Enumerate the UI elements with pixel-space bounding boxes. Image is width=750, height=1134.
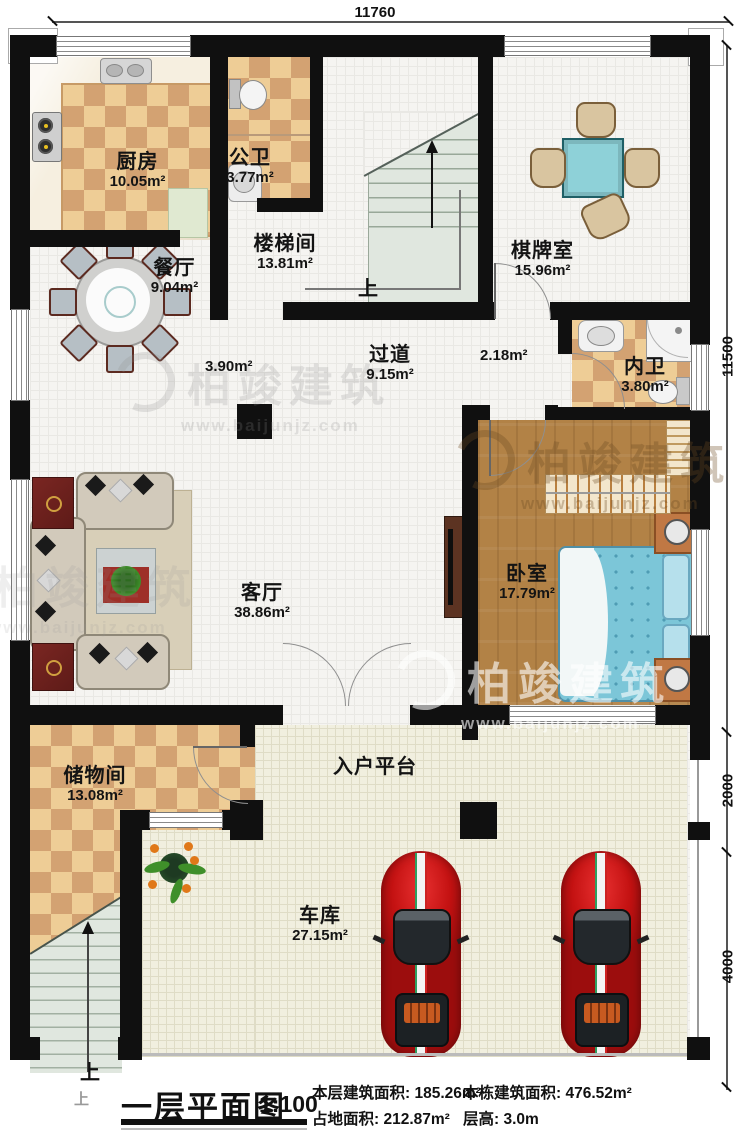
window [510,707,655,723]
plant [146,840,202,896]
side-cabinet [32,643,74,691]
wall [222,810,234,830]
room-label-living: 客厅38.86m² [222,583,302,622]
room-label-game-room: 棋牌室15.96m² [495,241,590,280]
stat-floor-area: 本层建筑面积: 185.26m² [312,1081,481,1103]
exterior-up-arrow-icon [82,921,94,934]
wall [478,57,493,310]
dimension-value-right: 11500 [720,329,737,385]
stat-total-area: 本栋建筑面积: 476.52m² [463,1081,632,1103]
window [150,813,222,827]
chair [576,102,616,138]
dimension-line-right [726,45,728,1090]
kitchen-sink [100,58,152,84]
wall [10,400,30,480]
wall-pier [688,822,710,840]
wall [690,410,710,530]
platform-edge [697,760,699,1037]
wall [558,320,572,354]
stairs-guide-line [305,288,461,290]
wall [120,810,150,830]
column [237,404,272,439]
wall [655,705,710,725]
window [692,345,708,410]
car [381,851,461,1057]
room-label-garage: 车库27.15m² [280,906,360,945]
wall [650,35,710,57]
bath-sink [578,320,624,352]
room-label-entry-platform: 入户平台 [320,757,430,778]
chair [530,148,566,188]
stairs-up-label-faint: 上 [74,1088,89,1109]
wall [10,1037,40,1060]
window [12,310,28,400]
door-leaf [193,746,247,748]
bath-partition [228,134,310,136]
title-underline-thin [121,1128,307,1130]
stairs-up-label: 上 [80,1056,100,1085]
dimension-line-top [52,21,730,23]
wardrobe-rod [545,474,671,514]
door-leaf [489,420,491,476]
room-label-storage: 储物间13.08m² [55,766,135,805]
dimension-value-top: 11760 [340,4,410,21]
room-label-bedroom: 卧室17.79m² [487,564,567,603]
wall [10,705,283,725]
column [460,802,497,839]
side-cabinet [32,477,74,529]
room-label-stairwell: 楼梯间13.81m² [240,234,330,273]
dimension-value-right: 4000 [720,944,737,990]
wall [10,640,30,1060]
wall [462,405,478,740]
stairs-up-label: 上 [358,272,378,301]
window [57,37,190,55]
room-label-public-bath: 公卫3.77m² [215,148,285,187]
wall [690,635,710,760]
window [692,530,708,635]
sofa-left [30,517,86,651]
chair [106,345,134,373]
wall [257,198,323,212]
wall [120,830,142,1057]
exterior-up-arrow-line [87,932,89,1072]
room-label-inner-bath: 内卫3.80m² [605,357,685,396]
up-arrow-icon [426,140,438,153]
toilet-bowl [239,80,267,110]
coffee-table [96,548,156,614]
wall [190,35,505,57]
wall [550,302,710,320]
floor-plan-page: 柏竣建筑 www.baijunjz.com 柏竣建筑 www.baijunjz.… [0,0,750,1134]
wall [230,800,263,840]
wall [545,405,558,420]
wall [10,57,30,310]
up-arrow-line [431,150,433,228]
area-measurement: 3.90m² [205,358,253,375]
window [505,37,650,55]
wall [240,725,255,747]
plan-scale: 1:100 [259,1091,318,1118]
wall [410,705,510,725]
title-underline [121,1119,307,1125]
stat-floor-height: 层高: 3.0m [463,1107,539,1129]
mahjong-table [562,138,624,198]
wall [310,57,323,198]
wall [283,302,495,320]
chair [624,148,660,188]
wall [30,230,180,247]
wall [687,1037,710,1060]
kitchen-stove [32,112,62,162]
car [561,851,641,1057]
wall [10,35,57,57]
bed-pillow [662,554,690,620]
stairs-guide-line [459,190,461,290]
dimension-value-right: 2000 [720,768,737,814]
window [12,480,28,640]
stat-footprint-area: 占地面积: 212.87m² [312,1107,450,1129]
room-label-dining: 餐厅9.04m² [132,258,217,297]
area-measurement: 2.18m² [480,347,528,364]
garage-door-line [142,1053,687,1056]
chair [49,288,77,316]
room-label-corridor: 过道9.15m² [350,345,430,384]
room-label-kitchen: 厨房10.05m² [95,152,180,191]
